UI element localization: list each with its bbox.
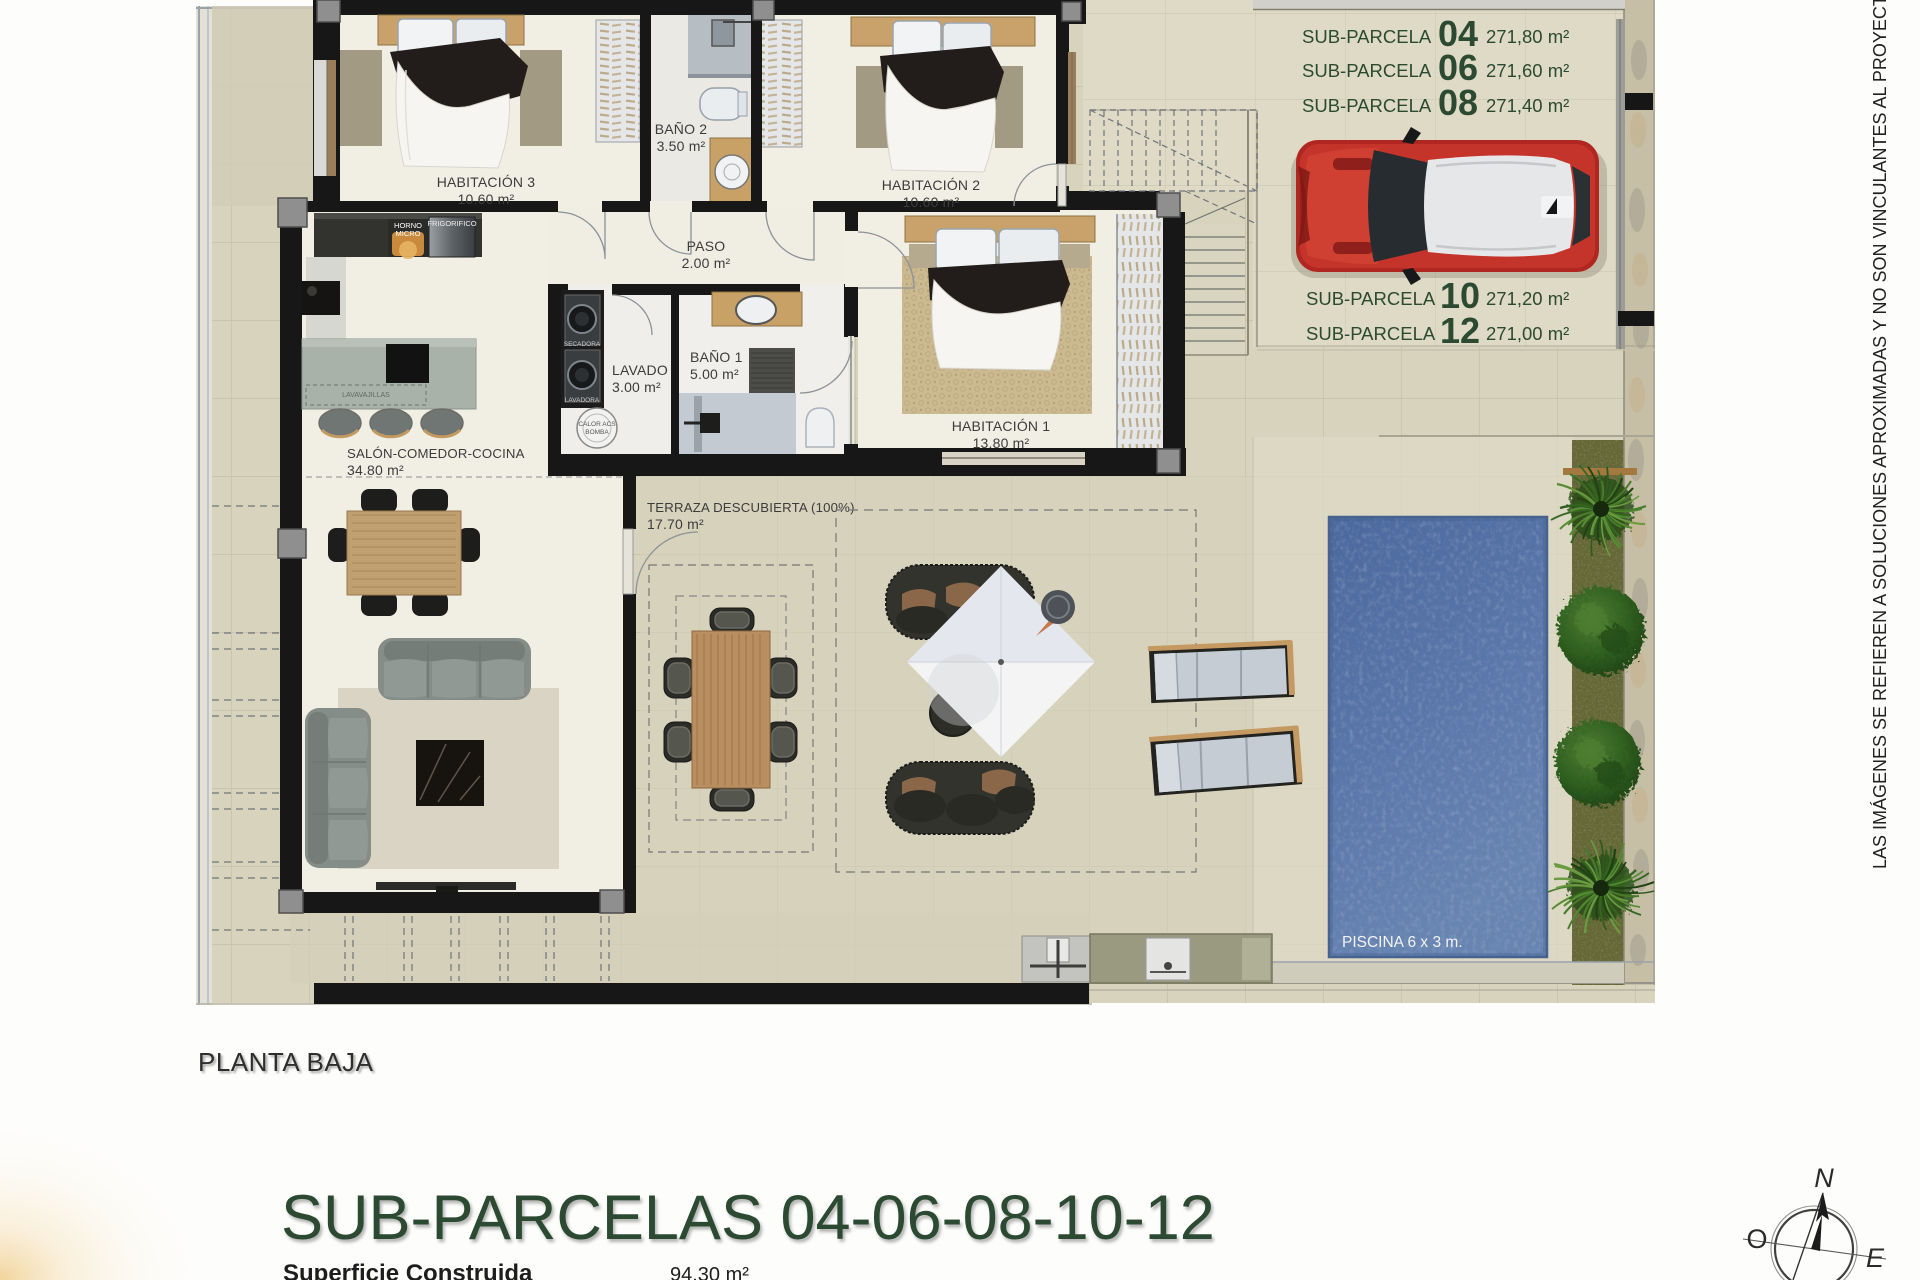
svg-text:HABITACIÓN 2: HABITACIÓN 2 [882,177,981,193]
svg-text:Superficie Construida: Superficie Construida [283,1260,533,1280]
svg-text:SUB-PARCELA: SUB-PARCELA [1306,288,1436,309]
svg-text:SUB-PARCELA: SUB-PARCELA [1302,26,1432,47]
svg-text:5.00 m²: 5.00 m² [690,366,739,382]
svg-text:34.80 m²: 34.80 m² [347,462,404,478]
svg-text:HABITACIÓN 3: HABITACIÓN 3 [437,174,536,190]
svg-text:LAS IMÁGENES SE REFIEREN A SOL: LAS IMÁGENES SE REFIEREN A SOLUCIONES AP… [1870,0,1890,869]
svg-text:SUB-PARCELA: SUB-PARCELA [1302,95,1432,116]
svg-text:3.00 m²: 3.00 m² [612,379,661,395]
svg-text:BOMBA: BOMBA [585,429,609,436]
svg-text:271,20 m²: 271,20 m² [1486,288,1569,309]
svg-text:17.70 m²: 17.70 m² [647,516,704,532]
svg-text:3.50 m²: 3.50 m² [657,138,706,154]
svg-text:E: E [1866,1243,1885,1273]
svg-text:12: 12 [1440,310,1480,351]
svg-text:10.60 m²: 10.60 m² [903,194,960,210]
svg-text:FRIGORIFICO: FRIGORIFICO [427,219,476,228]
svg-text:LAVADO: LAVADO [612,362,668,378]
svg-text:13.80 m²: 13.80 m² [973,435,1030,451]
svg-text:BAÑO 1: BAÑO 1 [690,349,743,365]
svg-text:2.00 m²: 2.00 m² [682,255,731,271]
svg-text:CALOR ACS: CALOR ACS [578,421,616,428]
svg-text:MICRO: MICRO [396,229,421,238]
svg-text:271,60 m²: 271,60 m² [1486,60,1569,81]
svg-text:PASO: PASO [687,238,726,254]
svg-text:BAÑO 2: BAÑO 2 [655,121,708,137]
svg-text:LAVADORA: LAVADORA [565,397,600,404]
svg-text:SUB-PARCELAS 04-06-08-10-12: SUB-PARCELAS 04-06-08-10-12 [281,1183,1215,1253]
svg-text:271,40 m²: 271,40 m² [1486,95,1569,116]
svg-text:SUB-PARCELA: SUB-PARCELA [1306,323,1436,344]
svg-text:271,00 m²: 271,00 m² [1486,323,1569,344]
svg-text:SUB-PARCELA: SUB-PARCELA [1302,60,1432,81]
svg-text:94.30 m²: 94.30 m² [670,1264,749,1280]
svg-text:TERRAZA DESCUBIERTA (100%): TERRAZA DESCUBIERTA (100%) [647,500,855,515]
svg-text:HABITACIÓN 1: HABITACIÓN 1 [952,418,1051,434]
svg-text:N: N [1814,1163,1834,1193]
svg-text:O: O [1746,1224,1767,1254]
svg-text:SECADORA: SECADORA [564,341,601,348]
svg-text:10.60 m²: 10.60 m² [458,191,515,207]
svg-text:LAVAVAJILLAS: LAVAVAJILLAS [342,392,390,399]
svg-text:08: 08 [1438,82,1478,123]
svg-text:SALÓN-COMEDOR-COCINA: SALÓN-COMEDOR-COCINA [347,446,525,461]
svg-text:271,80 m²: 271,80 m² [1486,26,1569,47]
svg-text:PLANTA BAJA: PLANTA BAJA [198,1047,374,1077]
svg-text:PISCINA 6 x 3 m.: PISCINA 6 x 3 m. [1342,934,1463,951]
